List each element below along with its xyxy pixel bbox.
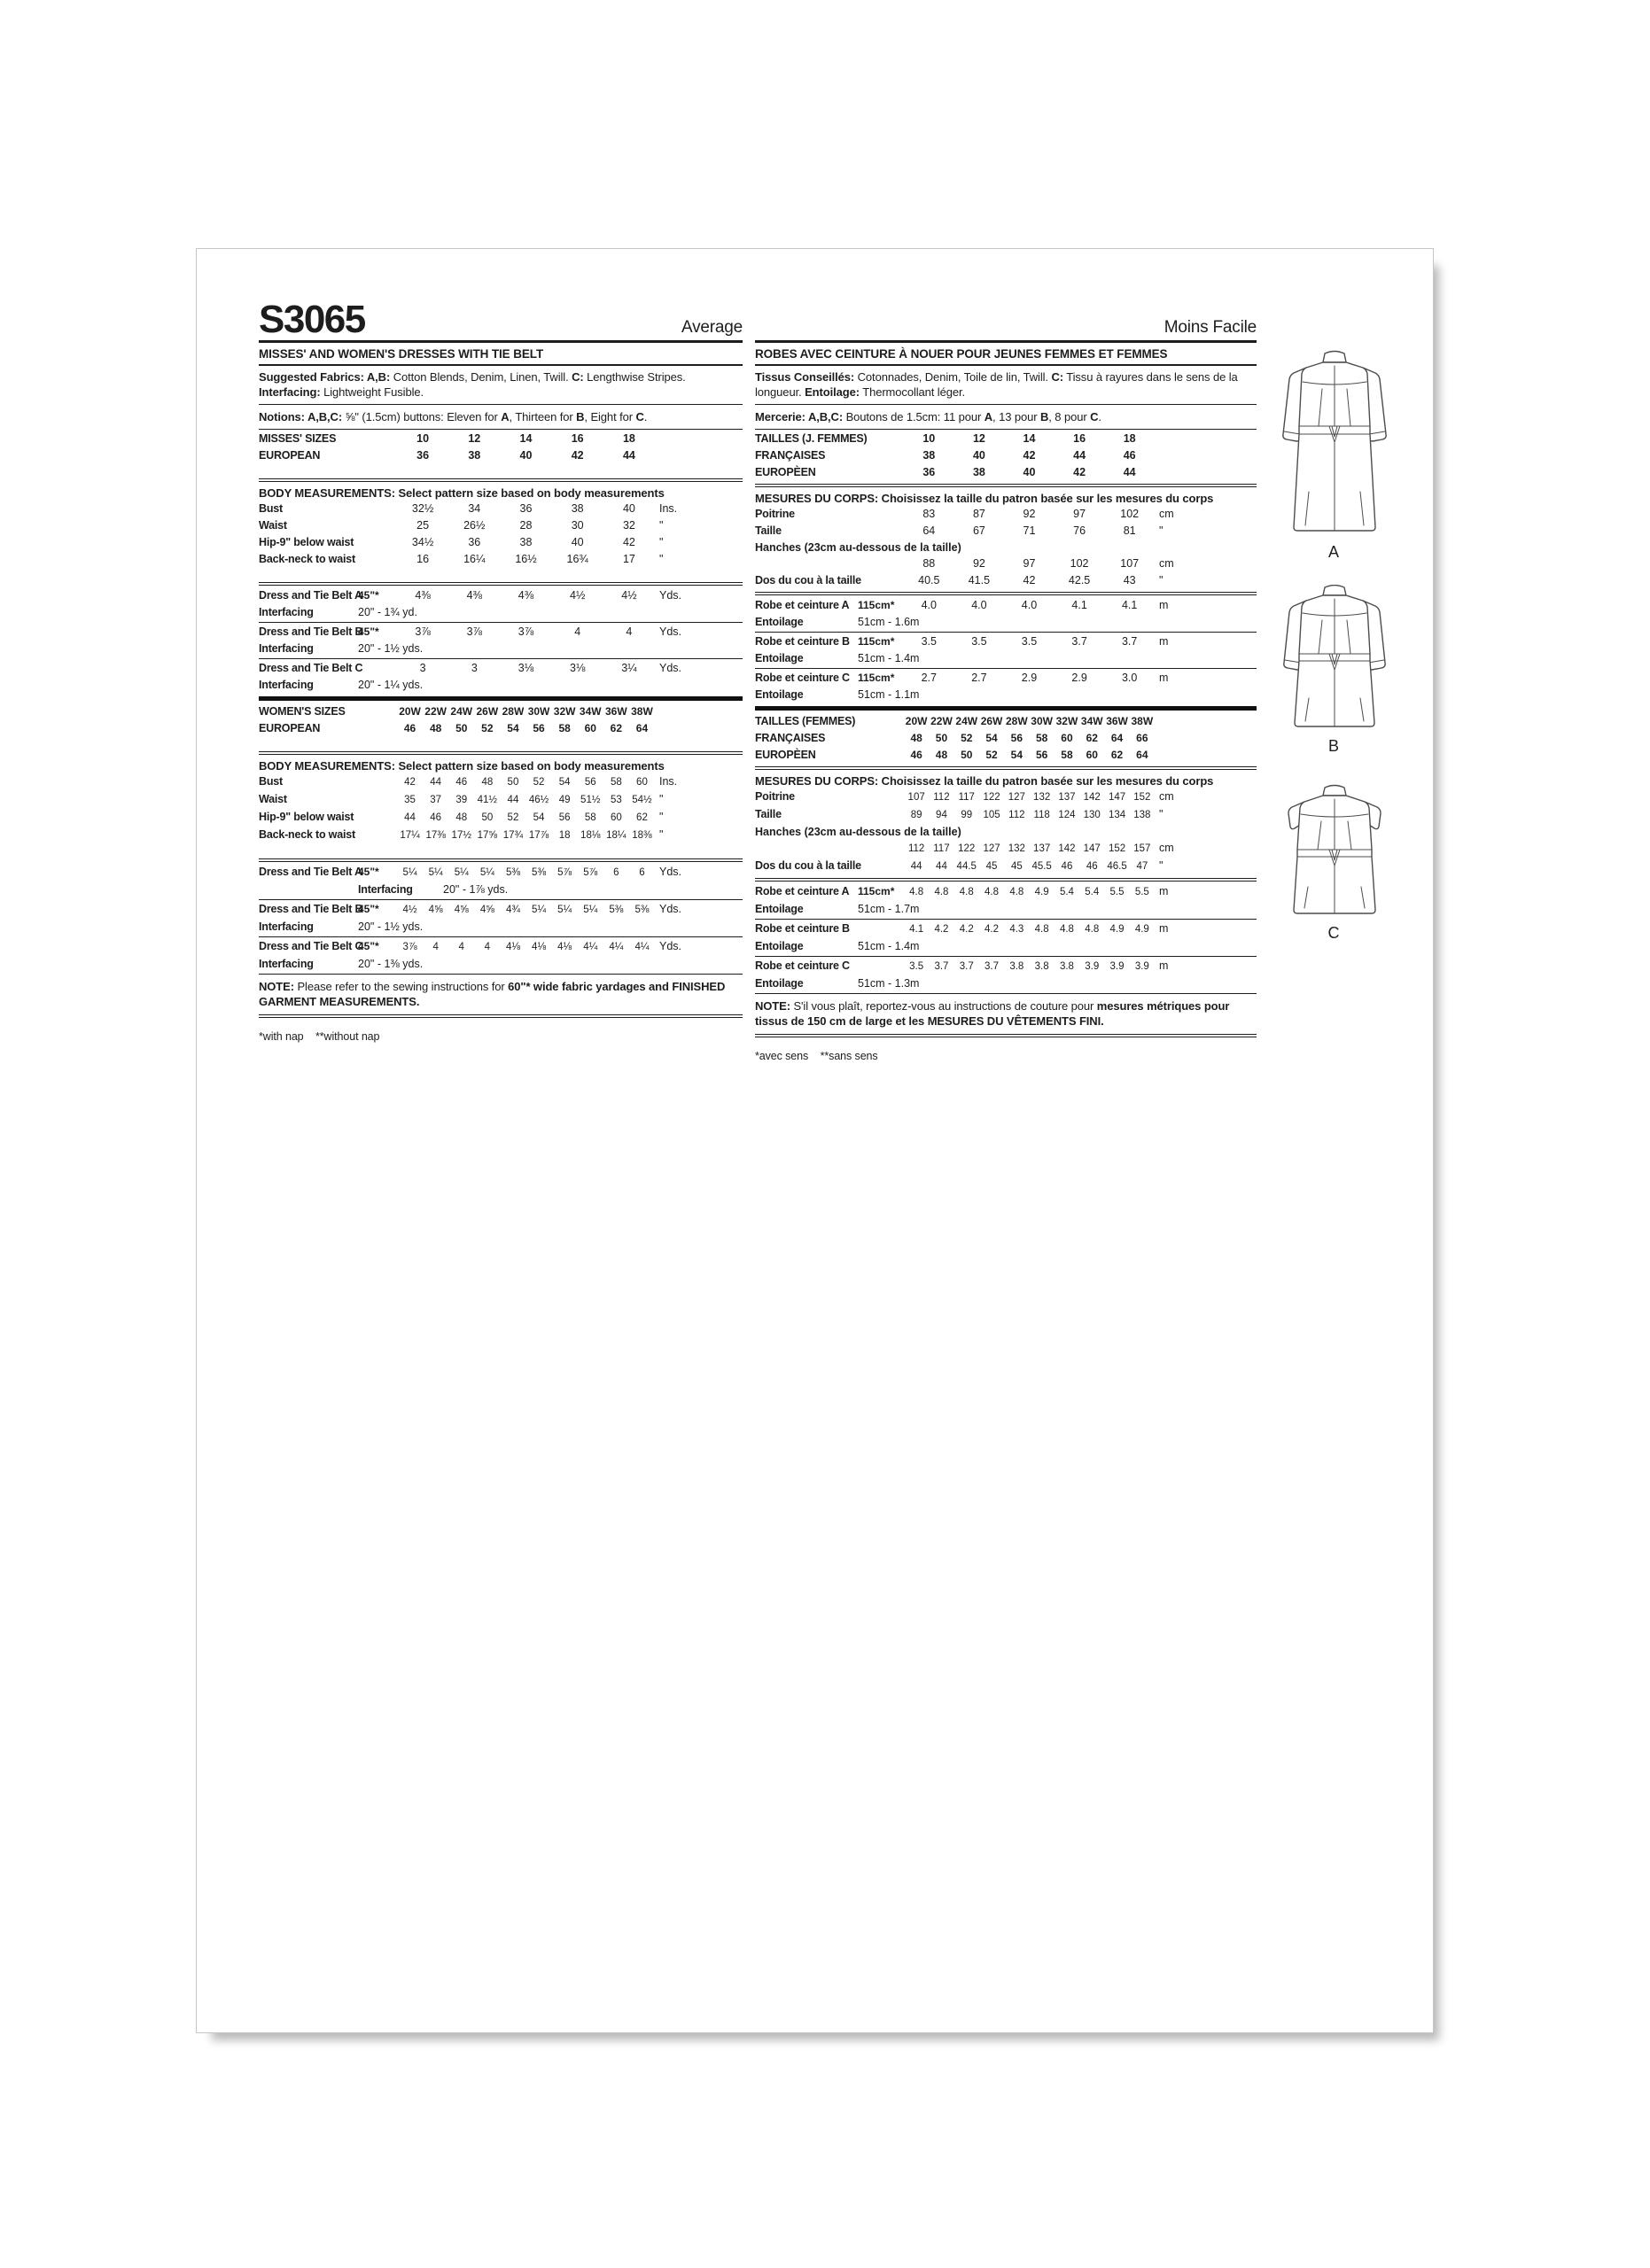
- unit-label: m: [1155, 958, 1187, 975]
- bold-text: Entoilage:: [805, 385, 860, 399]
- text: Please refer to the sewing instructions …: [294, 980, 508, 993]
- size-value: 44: [397, 810, 423, 827]
- size-value: 132: [1029, 789, 1054, 806]
- size-value: 58: [578, 810, 603, 827]
- table-row: Dress and Tie Belt A45"*4⅜4⅜4⅜4½4½Yds.: [259, 587, 690, 604]
- garment-view-illustrations: A B: [1257, 293, 1412, 943]
- size-value: 39: [448, 792, 474, 809]
- french-size-yardage-table: Tissus Conseillés: Cotonnades, Denim, To…: [755, 366, 1257, 1037]
- size-value: 17⅞: [526, 827, 552, 844]
- english-size-yardage-table: Suggested Fabrics: A,B: Cotton Blends, D…: [259, 366, 743, 1018]
- size-value: 60: [1055, 730, 1079, 747]
- size-value: 46½: [526, 792, 552, 809]
- size-value: 130: [1079, 807, 1104, 824]
- size-value: 4.0: [954, 597, 1005, 614]
- table-row: Waist2526½283032": [259, 517, 690, 534]
- size-value: 42: [1004, 447, 1055, 464]
- size-value: 67: [954, 523, 1005, 540]
- size-value: 147: [1079, 841, 1104, 858]
- size-value: 3.7: [1055, 633, 1105, 650]
- table-row: Dos du cou à la taille444444.5454545.546…: [755, 858, 1187, 875]
- table-row: 112117122127132137142147152157cm: [755, 840, 1187, 858]
- size-value: 4.8: [1079, 921, 1104, 938]
- table-row: Robe et ceinture C3.53.73.73.73.83.83.83…: [755, 958, 1187, 975]
- size-value: 4.2: [954, 921, 979, 938]
- size-value: 18: [1104, 431, 1155, 447]
- size-value: 46: [448, 774, 474, 791]
- table-row: Dress and Tie Belt C45"*3⅞4444⅛4⅛4⅛4¼4¼4…: [259, 938, 690, 956]
- size-value: 4½: [397, 902, 423, 919]
- table-row: Robe et ceinture A115cm*4.04.04.04.14.1m: [755, 597, 1187, 614]
- size-value: 4⅜: [448, 587, 500, 604]
- text-paragraph: Mercerie: A,B,C: Boutons de 1.5cm: 11 po…: [755, 406, 1257, 427]
- size-value: 17¾: [500, 827, 525, 844]
- size-value: 18⅜: [629, 827, 655, 844]
- interfacing-row: Entoilage51cm - 1.1m: [755, 687, 1187, 703]
- size-value: 89: [904, 807, 929, 824]
- row-label: Interfacing: [259, 956, 358, 972]
- size-value: 24W: [448, 703, 474, 720]
- size-value: 4¼: [629, 939, 655, 956]
- table-row: EUROPÈEN46485052545658606264: [755, 747, 1187, 764]
- size-value: 30W: [526, 703, 552, 720]
- size-value: 81: [1104, 523, 1155, 540]
- size-value: 16½: [500, 551, 551, 568]
- size-value: 4.8: [904, 884, 929, 901]
- row-label: Taille: [755, 806, 858, 823]
- unit-label: cm: [1155, 840, 1187, 857]
- size-value: 3.0: [1104, 670, 1155, 687]
- text: .: [644, 410, 648, 423]
- unit-label: Ins.: [655, 773, 690, 790]
- table-row: EUROPEAN3638404244: [259, 447, 690, 464]
- size-value: 99: [954, 807, 979, 824]
- size-value: 44: [500, 792, 525, 809]
- view-a-figure: A: [1281, 350, 1388, 562]
- separator-rule2: [259, 751, 743, 755]
- interfacing-row: Interfacing20" - 1⅜ yds.: [259, 956, 690, 972]
- size-value: 18¼: [603, 827, 629, 844]
- size-value: 5¼: [552, 902, 578, 919]
- separator-rule2: [755, 484, 1257, 487]
- size-value: 4.8: [954, 884, 979, 901]
- size-value: 34: [448, 501, 500, 517]
- size-value: 46: [1079, 858, 1104, 875]
- text-paragraph: Tissus Conseillés: Cotonnades, Denim, To…: [755, 366, 1257, 402]
- bold-text: Tissus Conseillés:: [755, 370, 854, 384]
- size-value: 32½: [397, 501, 448, 517]
- size-value: 60: [603, 810, 629, 827]
- size-value: 46: [1055, 858, 1079, 875]
- size-value: 58: [603, 774, 629, 791]
- interfacing-row: Entoilage51cm - 1.6m: [755, 614, 1187, 630]
- bold-text: NOTE:: [259, 980, 294, 993]
- size-value: 118: [1029, 807, 1054, 824]
- size-value: 5⅞: [578, 865, 603, 882]
- size-value: 48: [929, 747, 953, 764]
- size-value: 5.4: [1055, 884, 1079, 901]
- size-value: 3⅛: [552, 660, 603, 677]
- size-value: 3.5: [904, 633, 954, 650]
- unit-label: ": [655, 517, 690, 534]
- size-value: 124: [1055, 807, 1079, 824]
- size-value: 83: [904, 506, 954, 523]
- dress-back-view-a-illustration: [1281, 350, 1388, 536]
- bold-text: C: [635, 410, 643, 423]
- separator-rule2: [259, 1014, 743, 1018]
- size-value: 4.1: [904, 921, 929, 938]
- separator-rule: [755, 668, 1257, 669]
- separator-rule: [259, 622, 743, 623]
- separator-rule: [259, 429, 743, 430]
- bold-text: A: [501, 410, 509, 423]
- size-value: 54: [526, 810, 552, 827]
- size-value: 18: [603, 431, 655, 447]
- pattern-envelope-back-page: S3065 Average MISSES' AND WOMEN'S DRESSE…: [196, 248, 1434, 2033]
- size-value: 36: [448, 534, 500, 551]
- size-value: 5¼: [526, 902, 552, 919]
- size-value: 4¼: [603, 939, 629, 956]
- interfacing-row: Entoilage51cm - 1.7m: [755, 901, 1187, 917]
- text: Boutons de 1.5cm: 11 pour: [843, 410, 985, 423]
- unit-label: m: [1155, 633, 1187, 650]
- size-value: 4⅛: [526, 939, 552, 956]
- size-value: 4¼: [578, 939, 603, 956]
- unit-label: m: [1155, 670, 1187, 687]
- size-value: 3.7: [954, 959, 979, 975]
- size-value: 3⅛: [500, 660, 551, 677]
- size-value: 20W: [397, 703, 423, 720]
- unit-label: m: [1155, 597, 1187, 614]
- separator-gap: [259, 844, 743, 856]
- size-value: 17⅝: [474, 827, 500, 844]
- unit-label: m: [1155, 883, 1187, 900]
- size-value: 6: [629, 865, 655, 882]
- text: , Thirteen for: [510, 410, 577, 423]
- size-value: 26½: [448, 517, 500, 534]
- size-value: 5⅜: [526, 865, 552, 882]
- view-a-label: A: [1328, 543, 1340, 562]
- unit-label: Yds.: [655, 864, 690, 881]
- size-value: 46: [423, 810, 448, 827]
- size-value: 52: [526, 774, 552, 791]
- separator-rule2: [755, 1034, 1257, 1037]
- bold-text: Interfacing:: [259, 385, 321, 399]
- row-label: Hanches (23cm au-dessous de la taille): [755, 540, 1257, 555]
- unit-label: Yds.: [655, 901, 690, 918]
- text: , 8 pour: [1048, 410, 1090, 423]
- size-value: 87: [954, 506, 1005, 523]
- size-value: 4.9: [1029, 884, 1054, 901]
- row-label: EUROPEAN: [259, 720, 358, 737]
- size-value: 112: [904, 841, 929, 858]
- size-value: 40: [603, 501, 655, 517]
- size-value: 3.9: [1104, 959, 1129, 975]
- unit-label: ": [655, 551, 690, 568]
- size-value: 2.9: [1055, 670, 1105, 687]
- table-row: TAILLES (J. FEMMES)1012141618: [755, 431, 1187, 447]
- size-value: 3⅞: [500, 624, 551, 641]
- size-value: 4.2: [979, 921, 1004, 938]
- difficulty-rating-french: Moins Facile: [1164, 318, 1257, 338]
- size-value: 28W: [1004, 713, 1029, 730]
- unit-label: m: [1155, 920, 1187, 937]
- separator-rule2: [259, 582, 743, 586]
- title-bar-french: Moins Facile: [755, 293, 1257, 343]
- row-label: Interfacing: [259, 677, 358, 693]
- size-value: 54½: [629, 792, 655, 809]
- size-value: 45: [979, 858, 1004, 875]
- size-value: 4.8: [1004, 884, 1029, 901]
- size-value: 18: [552, 827, 578, 844]
- fabric-width: 45"*: [358, 624, 397, 641]
- size-value: 4.8: [929, 884, 953, 901]
- view-c-figure: C: [1281, 784, 1388, 943]
- size-value: 36: [904, 464, 954, 481]
- size-value: 64: [629, 720, 655, 737]
- size-value: 4.9: [1104, 921, 1129, 938]
- unit-label: cm: [1155, 555, 1187, 572]
- interfacing-value: 20" - 1⅞ yds.: [443, 882, 790, 897]
- dress-back-view-c-illustration: [1281, 784, 1388, 917]
- size-value: 46.5: [1104, 858, 1129, 875]
- size-value: 5¼: [578, 902, 603, 919]
- section-heading: BODY MEASUREMENTS: Select pattern size b…: [259, 757, 743, 773]
- fabric-width: 115cm*: [858, 597, 904, 614]
- size-value: 42.5: [1055, 572, 1105, 589]
- size-value: 122: [954, 841, 979, 858]
- size-value: 42: [397, 774, 423, 791]
- size-value: 3⅞: [448, 624, 500, 641]
- interfacing-value: 51cm - 1.4m: [858, 650, 1187, 666]
- size-value: 36: [397, 447, 448, 464]
- size-value: 48: [448, 810, 474, 827]
- row-label: Interfacing: [259, 641, 358, 656]
- row-label: Entoilage: [755, 650, 858, 666]
- row-label: Dos du cou à la taille: [755, 572, 858, 589]
- size-value: 46: [397, 720, 423, 737]
- row-label: Entoilage: [755, 938, 858, 954]
- size-value: 28: [500, 517, 551, 534]
- size-value: 4.9: [1130, 921, 1155, 938]
- size-value: 28W: [500, 703, 525, 720]
- size-value: 5¼: [474, 865, 500, 882]
- size-value: 60: [578, 720, 603, 737]
- interfacing-row: Entoilage51cm - 1.4m: [755, 938, 1187, 954]
- size-value: 44.5: [954, 858, 979, 875]
- size-value: 43: [1104, 572, 1155, 589]
- row-label: TAILLES (FEMMES): [755, 713, 858, 730]
- size-value: 112: [929, 789, 953, 806]
- size-value: 71: [1004, 523, 1055, 540]
- size-value: 42: [552, 447, 603, 464]
- table-row: EUROPEAN46485052545658606264: [259, 720, 690, 737]
- size-value: 117: [929, 841, 953, 858]
- size-value: 53: [603, 792, 629, 809]
- separator-rule: [755, 993, 1257, 994]
- size-value: 52: [979, 747, 1004, 764]
- table-row: Taille899499105112118124130134138": [755, 806, 1187, 824]
- size-value: 50: [448, 720, 474, 737]
- text: Thermocollant léger.: [860, 385, 965, 399]
- separator-rule2: [755, 766, 1257, 770]
- size-value: 49: [552, 792, 578, 809]
- nap-footnote-french: *avec sens **sans sens: [755, 1050, 1257, 1062]
- view-b-figure: B: [1281, 585, 1388, 756]
- size-value: 3.7: [929, 959, 953, 975]
- size-value: 17¼: [397, 827, 423, 844]
- interfacing-value: 51cm - 1.7m: [858, 901, 1187, 917]
- size-value: 76: [1055, 523, 1105, 540]
- size-value: 152: [1130, 789, 1155, 806]
- row-label: TAILLES (J. FEMMES): [755, 431, 858, 447]
- table-row: 889297102107cm: [755, 555, 1187, 572]
- size-value: 94: [929, 807, 953, 824]
- unit-label: ": [1155, 806, 1187, 823]
- row-label: EUROPÈEN: [755, 747, 858, 764]
- size-value: 62: [629, 810, 655, 827]
- size-value: 5.5: [1104, 884, 1129, 901]
- size-value: 62: [1079, 730, 1104, 747]
- size-value: 5¼: [423, 865, 448, 882]
- garment-title-english: MISSES' AND WOMEN'S DRESSES WITH TIE BEL…: [259, 343, 743, 366]
- interfacing-value: 20" - 1¼ yds.: [358, 677, 690, 693]
- unit-label: Yds.: [655, 624, 690, 641]
- table-row: Poitrine107112117122127132137142147152cm: [755, 788, 1187, 806]
- size-value: 32W: [1055, 713, 1079, 730]
- size-value: 4½: [603, 587, 655, 604]
- row-label: Dress and Tie Belt A: [259, 587, 358, 604]
- size-value: 3.5: [904, 959, 929, 975]
- size-value: 54: [552, 774, 578, 791]
- bold-text: Notions:: [259, 410, 307, 423]
- text: , 13 pour: [992, 410, 1040, 423]
- unit-label: Yds.: [655, 660, 690, 677]
- french-column: Moins Facile ROBES AVEC CEINTURE À NOUER…: [755, 293, 1257, 1062]
- size-value: 4⅜: [397, 587, 448, 604]
- fabric-width: 115cm*: [858, 883, 904, 900]
- size-value: 36W: [1104, 713, 1129, 730]
- bold-text: B: [1040, 410, 1048, 423]
- size-value: 4: [552, 624, 603, 641]
- size-value: 12: [954, 431, 1005, 447]
- size-value: 52: [500, 810, 525, 827]
- size-value: 54: [979, 730, 1004, 747]
- size-value: 14: [500, 431, 551, 447]
- size-value: 34W: [578, 703, 603, 720]
- size-value: 3⅞: [397, 939, 423, 956]
- nap-footnote-english: *with nap **without nap: [259, 1030, 743, 1043]
- size-value: 46: [1104, 447, 1155, 464]
- size-value: 4.3: [1004, 921, 1029, 938]
- section-heading: MESURES DU CORPS: Choisissez la taille d…: [755, 489, 1257, 506]
- size-value: 56: [1004, 730, 1029, 747]
- row-label: Robe et ceinture A: [755, 597, 858, 614]
- row-label: Dress and Tie Belt C: [259, 660, 358, 677]
- row-label: Robe et ceinture B: [755, 633, 858, 650]
- separator-rule: [259, 974, 743, 975]
- size-value: 16: [552, 431, 603, 447]
- size-value: 97: [1004, 555, 1055, 572]
- size-value: 92: [1004, 506, 1055, 523]
- size-value: 4: [474, 939, 500, 956]
- size-value: 112: [1004, 807, 1029, 824]
- unit-label: Ins.: [655, 501, 690, 517]
- row-label: EUROPEAN: [259, 447, 358, 464]
- table-row: Dress and Tie Belt B45"*4½4⅝4⅝4⅝4¾5¼5¼5¼…: [259, 901, 690, 919]
- size-value: 20W: [904, 713, 929, 730]
- text: S'il vous plaît, reportez-vous au instru…: [790, 999, 1097, 1013]
- interfacing-row: Entoilage51cm - 1.4m: [755, 650, 1187, 666]
- size-value: 62: [603, 720, 629, 737]
- bold-text: A,B:: [367, 370, 390, 384]
- row-label: Poitrine: [755, 788, 858, 805]
- size-value: 26W: [979, 713, 1004, 730]
- table-row: Dress and Tie Belt B45"*3⅞3⅞3⅞44Yds.: [259, 624, 690, 641]
- size-value: 42: [1055, 464, 1105, 481]
- size-value: 46: [904, 747, 929, 764]
- table-row: Dos du cou à la taille40.541.54242.543": [755, 572, 1187, 589]
- bold-text: C: [1090, 410, 1098, 423]
- row-label: Entoilage: [755, 614, 858, 630]
- size-value: 18⅛: [578, 827, 603, 844]
- separator-rule: [259, 936, 743, 937]
- size-value: 3.8: [1004, 959, 1029, 975]
- size-value: 6: [603, 865, 629, 882]
- separator-rule: [755, 956, 1257, 957]
- table-row: Hip-9" below waist34½36384042": [259, 534, 690, 551]
- size-value: 35: [397, 792, 423, 809]
- row-label: WOMEN'S SIZES: [259, 703, 358, 720]
- size-value: 5⅜: [603, 902, 629, 919]
- text-paragraph: Notions: A,B,C: ⅝" (1.5cm) buttons: Elev…: [259, 406, 743, 427]
- size-value: 107: [1104, 555, 1155, 572]
- size-value: 16¾: [552, 551, 603, 568]
- row-label: Interfacing: [259, 604, 358, 620]
- unit-label: ": [655, 791, 690, 808]
- size-value: 36W: [603, 703, 629, 720]
- table-row: MISSES' SIZES1012141618: [259, 431, 690, 447]
- size-value: 30: [552, 517, 603, 534]
- row-label: Taille: [755, 523, 858, 540]
- fabric-width: 45"*: [358, 901, 397, 918]
- separator-rule: [755, 919, 1257, 920]
- page-content: S3065 Average MISSES' AND WOMEN'S DRESSE…: [259, 293, 1412, 1062]
- size-value: 50: [929, 730, 953, 747]
- section-heading: MESURES DU CORPS: Choisissez la taille d…: [755, 772, 1257, 788]
- size-value: 88: [904, 555, 954, 572]
- size-value: 38: [904, 447, 954, 464]
- separator-rule: [755, 632, 1257, 633]
- row-label: Dos du cou à la taille: [755, 858, 858, 874]
- size-value: 3.9: [1130, 959, 1155, 975]
- separator-gap: [259, 568, 743, 579]
- size-value: 4⅛: [500, 939, 525, 956]
- size-value: 127: [1004, 789, 1029, 806]
- size-value: 51½: [578, 792, 603, 809]
- size-value: 37: [423, 792, 448, 809]
- size-value: 54: [1004, 747, 1029, 764]
- size-value: 157: [1130, 841, 1155, 858]
- view-c-label: C: [1328, 924, 1341, 943]
- text-paragraph: NOTE: Please refer to the sewing instruc…: [259, 975, 743, 1012]
- view-b-label: B: [1328, 737, 1340, 756]
- size-value: 56: [552, 810, 578, 827]
- size-value: 44: [904, 858, 929, 875]
- interfacing-value: 51cm - 1.4m: [858, 938, 1187, 954]
- size-value: 38: [954, 464, 1005, 481]
- size-value: 58: [1029, 730, 1054, 747]
